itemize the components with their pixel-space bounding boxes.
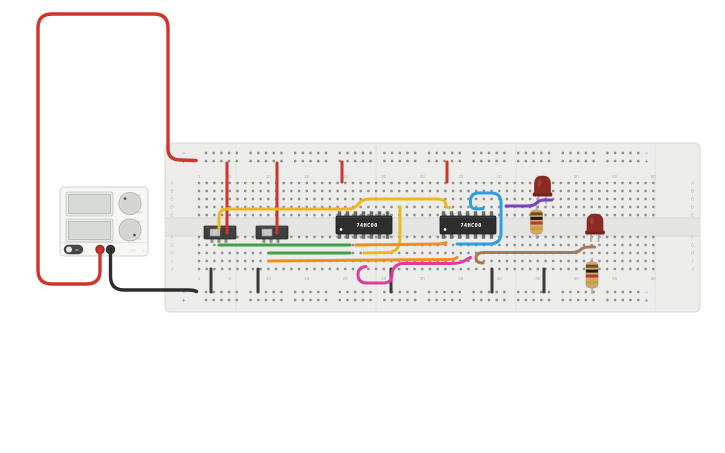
- breadboard-hole: [529, 268, 531, 270]
- breadboard-hole: [540, 299, 542, 301]
- breadboard-hole: [652, 236, 654, 238]
- breadboard-hole: [346, 299, 348, 301]
- breadboard-hole: [406, 236, 408, 238]
- breadboard-hole: [398, 182, 400, 184]
- breadboard-hole: [206, 182, 208, 184]
- breadboard-hole: [567, 198, 569, 200]
- breadboard-hole: [567, 244, 569, 246]
- breadboard-hole: [360, 236, 362, 238]
- breadboard-hole: [475, 198, 477, 200]
- breadboard-hole: [213, 299, 215, 301]
- breadboard-hole: [383, 291, 385, 293]
- breadboard-hole: [506, 260, 508, 262]
- breadboard-hole: [249, 299, 251, 301]
- breadboard-hole: [413, 182, 415, 184]
- breadboard-hole: [391, 299, 393, 301]
- breadboard-hole: [325, 291, 327, 293]
- breadboard-hole: [428, 291, 430, 293]
- breadboard-hole: [198, 252, 200, 254]
- breadboard-hole: [629, 299, 631, 301]
- breadboard-hole: [429, 252, 431, 254]
- breadboard-hole: [367, 236, 369, 238]
- breadboard-hole: [560, 244, 562, 246]
- breadboard-hole: [560, 268, 562, 270]
- breadboard-hole: [198, 244, 200, 246]
- breadboard-hole: [540, 152, 542, 154]
- breadboard-hole: [383, 206, 385, 208]
- breadboard-hole: [490, 206, 492, 208]
- breadboard-hole: [413, 214, 415, 216]
- breadboard-hole: [206, 214, 208, 216]
- breadboard-hole: [244, 236, 246, 238]
- ic-pin1-dot: [340, 228, 343, 231]
- breadboard-hole: [503, 152, 505, 154]
- breadboard-hole: [444, 252, 446, 254]
- breadboard-hole: [252, 260, 254, 262]
- breadboard-hole: [575, 182, 577, 184]
- breadboard-hole: [606, 252, 608, 254]
- breadboard-hole: [622, 160, 624, 162]
- breadboard-hole: [236, 260, 238, 262]
- breadboard-hole: [236, 182, 238, 184]
- breadboard-hole: [480, 291, 482, 293]
- breadboard-hole: [329, 268, 331, 270]
- breadboard-hole: [413, 268, 415, 270]
- breadboard-hole: [213, 206, 215, 208]
- breadboard-hole: [552, 214, 554, 216]
- breadboard-hole: [265, 299, 267, 301]
- voltage-knob-indicator: [124, 197, 127, 200]
- breadboard-hole: [503, 160, 505, 162]
- breadboard-hole: [652, 190, 654, 192]
- breadboard-hole: [283, 268, 285, 270]
- breadboard-hole: [637, 299, 639, 301]
- breadboard-hole: [583, 206, 585, 208]
- rail-minus-symbol: −: [182, 151, 186, 157]
- breadboard-hole: [614, 252, 616, 254]
- breadboard-hole: [321, 198, 323, 200]
- breadboard-hole: [413, 190, 415, 192]
- breadboard-hole: [406, 206, 408, 208]
- breadboard-hole: [406, 268, 408, 270]
- breadboard-hole: [488, 299, 490, 301]
- breadboard-hole: [575, 268, 577, 270]
- rail-minus-symbol: −: [645, 151, 649, 157]
- breadboard-hole: [552, 236, 554, 238]
- breadboard-hole: [267, 198, 269, 200]
- breadboard-hole: [614, 244, 616, 246]
- breadboard-hole: [437, 206, 439, 208]
- breadboard-hole: [213, 152, 215, 154]
- breadboard-hole: [583, 252, 585, 254]
- breadboard-hole: [336, 190, 338, 192]
- breadboard-hole: [252, 268, 254, 270]
- breadboard-hole: [206, 268, 208, 270]
- breadboard-hole: [244, 214, 246, 216]
- column-label: 30: [420, 174, 426, 179]
- breadboard-hole: [544, 244, 546, 246]
- breadboard-hole: [421, 214, 423, 216]
- breadboard-hole: [267, 182, 269, 184]
- breadboard-hole: [548, 160, 550, 162]
- breadboard-hole: [443, 291, 445, 293]
- breadboard-hole: [354, 152, 356, 154]
- psu-display-screen-1: [69, 195, 111, 214]
- breadboard-hole: [406, 182, 408, 184]
- breadboard-hole: [598, 182, 600, 184]
- breadboard-hole: [583, 198, 585, 200]
- breadboard-hole: [452, 244, 454, 246]
- breadboard-hole: [560, 260, 562, 262]
- switch-slider[interactable]: [262, 229, 272, 236]
- breadboard-hole: [472, 152, 474, 154]
- breadboard-hole: [369, 160, 371, 162]
- led-body[interactable]: [587, 214, 603, 232]
- breadboard-hole: [472, 160, 474, 162]
- breadboard-hole: [306, 182, 308, 184]
- column-label: 45: [535, 276, 541, 281]
- breadboard-hole: [309, 291, 311, 293]
- breadboard-hole: [298, 268, 300, 270]
- column-label: 60: [651, 276, 657, 281]
- breadboard-hole: [313, 190, 315, 192]
- breadboard-hole: [306, 198, 308, 200]
- breadboard-hole: [517, 299, 519, 301]
- breadboard-hole: [352, 190, 354, 192]
- breadboard-hole: [362, 152, 364, 154]
- breadboard-hole: [644, 198, 646, 200]
- breadboard-hole: [206, 198, 208, 200]
- breadboard-hole: [436, 291, 438, 293]
- breadboard-hole: [273, 152, 275, 154]
- breadboard-hole: [339, 291, 341, 293]
- breadboard-hole: [506, 190, 508, 192]
- breadboard-hole: [280, 291, 282, 293]
- breadboard-hole: [606, 236, 608, 238]
- breadboard-hole: [244, 182, 246, 184]
- breadboard-hole: [283, 214, 285, 216]
- breadboard-hole: [229, 252, 231, 254]
- breadboard-hole: [517, 160, 519, 162]
- breadboard-hole: [375, 182, 377, 184]
- breadboard-hole: [529, 182, 531, 184]
- breadboard-hole: [525, 152, 527, 154]
- breadboard-hole: [567, 206, 569, 208]
- breadboard-hole: [567, 190, 569, 192]
- breadboard-hole: [562, 160, 564, 162]
- breadboard-hole: [452, 182, 454, 184]
- breadboard-hole: [421, 252, 423, 254]
- row-label: B: [170, 189, 173, 194]
- breadboard-hole: [629, 190, 631, 192]
- breadboard-hole: [459, 291, 461, 293]
- breadboard-hole: [525, 160, 527, 162]
- breadboard-hole: [598, 260, 600, 262]
- breadboard-hole: [360, 182, 362, 184]
- breadboard-hole: [567, 268, 569, 270]
- breadboard-hole: [521, 244, 523, 246]
- breadboard-hole: [375, 190, 377, 192]
- breadboard-hole: [344, 198, 346, 200]
- breadboard-hole: [383, 160, 385, 162]
- breadboard-hole: [336, 198, 338, 200]
- breadboard-hole: [267, 214, 269, 216]
- breadboard-hole: [265, 152, 267, 154]
- breadboard-hole: [383, 268, 385, 270]
- rail-plus-symbol: +: [645, 160, 649, 166]
- breadboard-hole: [298, 198, 300, 200]
- breadboard-hole: [467, 206, 469, 208]
- breadboard-hole: [198, 198, 200, 200]
- breadboard-hole: [652, 198, 654, 200]
- breadboard-hole: [406, 152, 408, 154]
- breadboard-hole: [391, 152, 393, 154]
- breadboard-hole: [390, 182, 392, 184]
- breadboard-hole: [621, 214, 623, 216]
- breadboard-hole: [521, 214, 523, 216]
- breadboard-hole: [362, 299, 364, 301]
- breadboard-hole: [575, 198, 577, 200]
- breadboard-hole: [213, 198, 215, 200]
- breadboard-hole: [544, 214, 546, 216]
- breadboard-hole: [577, 299, 579, 301]
- breadboard-hole: [213, 244, 215, 246]
- breadboard-hole: [249, 291, 251, 293]
- breadboard-hole: [398, 190, 400, 192]
- column-label: 1: [198, 174, 201, 179]
- resistor-band: [531, 221, 543, 224]
- breadboard-hole: [467, 268, 469, 270]
- breadboard-hole: [498, 190, 500, 192]
- breadboard-hole: [346, 160, 348, 162]
- breadboard-hole: [460, 190, 462, 192]
- breadboard-hole: [294, 291, 296, 293]
- breadboard-hole: [591, 198, 593, 200]
- breadboard-hole: [313, 214, 315, 216]
- breadboard-hole: [637, 190, 639, 192]
- breadboard-hole: [302, 291, 304, 293]
- breadboard-hole: [428, 299, 430, 301]
- breadboard-hole: [443, 152, 445, 154]
- breadboard-hole: [644, 236, 646, 238]
- breadboard-hole: [460, 268, 462, 270]
- breadboard-hole: [437, 182, 439, 184]
- breadboard-hole: [637, 182, 639, 184]
- breadboard-hole: [329, 190, 331, 192]
- breadboard-hole: [503, 291, 505, 293]
- breadboard-hole: [436, 160, 438, 162]
- breadboard-hole: [406, 160, 408, 162]
- column-label: 5: [229, 276, 232, 281]
- breadboard-hole: [614, 182, 616, 184]
- breadboard-hole: [309, 152, 311, 154]
- breadboard-hole: [280, 152, 282, 154]
- breadboard-hole: [575, 206, 577, 208]
- breadboard-hole: [369, 152, 371, 154]
- breadboard-hole: [236, 291, 238, 293]
- breadboard-hole: [205, 160, 207, 162]
- breadboard-hole: [367, 182, 369, 184]
- breadboard-hole: [606, 260, 608, 262]
- breadboard-hole: [575, 190, 577, 192]
- led-body[interactable]: [535, 176, 551, 194]
- row-label: E: [170, 213, 173, 218]
- breadboard-hole: [598, 190, 600, 192]
- breadboard-hole: [644, 252, 646, 254]
- breadboard-hole: [606, 291, 608, 293]
- breadboard-hole: [452, 198, 454, 200]
- breadboard-hole: [346, 291, 348, 293]
- breadboard-hole: [236, 152, 238, 154]
- breadboard-hole: [221, 182, 223, 184]
- breadboard-hole: [399, 160, 401, 162]
- breadboard-hole: [490, 198, 492, 200]
- breadboard-hole: [399, 291, 401, 293]
- breadboard-hole: [391, 160, 393, 162]
- power-toggle-label: on: [75, 248, 79, 252]
- breadboard-hole: [652, 214, 654, 216]
- breadboard-hole: [283, 198, 285, 200]
- row-label: G: [691, 243, 695, 248]
- breadboard-hole: [621, 190, 623, 192]
- breadboard-hole: [606, 206, 608, 208]
- breadboard-hole: [383, 299, 385, 301]
- breadboard-hole: [467, 190, 469, 192]
- breadboard-hole: [552, 206, 554, 208]
- breadboard-hole: [652, 252, 654, 254]
- power-supply-group: 0V30VDC5Aon000⌁: [60, 187, 148, 256]
- breadboard-hole: [560, 214, 562, 216]
- breadboard-hole: [302, 152, 304, 154]
- breadboard-hole: [298, 214, 300, 216]
- column-label: 25: [381, 174, 387, 179]
- breadboard-hole: [228, 152, 230, 154]
- breadboard-hole: [577, 152, 579, 154]
- breadboard-hole: [614, 260, 616, 262]
- breadboard-hole: [421, 190, 423, 192]
- breadboard-hole: [306, 236, 308, 238]
- breadboard-hole: [298, 182, 300, 184]
- breadboard-hole: [244, 268, 246, 270]
- row-label: E: [691, 213, 694, 218]
- breadboard-hole: [517, 152, 519, 154]
- breadboard-hole: [514, 268, 516, 270]
- ic-label: 74HC00: [356, 223, 377, 229]
- breadboard-hole: [244, 252, 246, 254]
- breadboard-hole: [629, 260, 631, 262]
- breadboard-hole: [390, 206, 392, 208]
- breadboard-hole: [452, 268, 454, 270]
- breadboard-hole: [346, 152, 348, 154]
- breadboard-hole: [591, 190, 593, 192]
- breadboard-hole: [467, 182, 469, 184]
- breadboard-hole: [290, 182, 292, 184]
- breadboard-hole: [637, 291, 639, 293]
- breadboard-hole: [637, 152, 639, 154]
- breadboard-hole: [525, 299, 527, 301]
- breadboard-hole: [514, 236, 516, 238]
- breadboard-hole: [228, 291, 230, 293]
- breadboard-hole: [206, 206, 208, 208]
- breadboard-hole: [621, 182, 623, 184]
- breadboard-hole: [354, 291, 356, 293]
- breadboard-hole: [383, 236, 385, 238]
- column-label: 35: [458, 276, 464, 281]
- breadboard-hole: [283, 182, 285, 184]
- breadboard-hole: [488, 291, 490, 293]
- breadboard-hole: [606, 190, 608, 192]
- breadboard-hole: [569, 299, 571, 301]
- rail-plus-symbol: +: [645, 299, 649, 305]
- breadboard-hole: [652, 244, 654, 246]
- breadboard-hole: [598, 244, 600, 246]
- breadboard-hole: [548, 299, 550, 301]
- breadboard-hole: [329, 198, 331, 200]
- breadboard-hole: [621, 260, 623, 262]
- breadboard-hole: [273, 160, 275, 162]
- breadboard-hole: [205, 299, 207, 301]
- breadboard-hole: [652, 182, 654, 184]
- breadboard-hole: [298, 236, 300, 238]
- breadboard-hole: [362, 160, 364, 162]
- breadboard-hole: [521, 268, 523, 270]
- breadboard-hole: [629, 244, 631, 246]
- breadboard-hole: [514, 182, 516, 184]
- breadboard-hole: [414, 152, 416, 154]
- breadboard-hole: [290, 268, 292, 270]
- breadboard-hole: [644, 268, 646, 270]
- row-label: J: [691, 267, 693, 272]
- breadboard-hole: [560, 206, 562, 208]
- row-label: H: [691, 251, 694, 256]
- breadboard-hole: [329, 182, 331, 184]
- breadboard-hole: [406, 252, 408, 254]
- breadboard-hole: [444, 268, 446, 270]
- column-label: 40: [497, 276, 503, 281]
- breadboard-hole: [321, 268, 323, 270]
- column-label: 55: [612, 174, 618, 179]
- breadboard-hole: [399, 299, 401, 301]
- breadboard-hole: [529, 198, 531, 200]
- breadboard-hole: [532, 152, 534, 154]
- voltage-knob-label-bottom: 30V: [137, 211, 144, 215]
- breadboard-hole: [244, 260, 246, 262]
- breadboard-hole: [629, 268, 631, 270]
- breadboard-hole: [532, 160, 534, 162]
- breadboard-hole: [614, 206, 616, 208]
- breadboard-hole: [583, 182, 585, 184]
- breadboard-hole: [521, 190, 523, 192]
- breadboard-hole: [290, 214, 292, 216]
- breadboard-hole: [552, 260, 554, 262]
- breadboard-hole: [352, 182, 354, 184]
- breadboard-hole: [480, 152, 482, 154]
- column-label: 50: [574, 276, 580, 281]
- breadboard-hole: [344, 190, 346, 192]
- breadboard-hole: [265, 291, 267, 293]
- breadboard-hole: [313, 182, 315, 184]
- breadboard-hole: [652, 260, 654, 262]
- breadboard-hole: [592, 152, 594, 154]
- breadboard-hole: [606, 198, 608, 200]
- current-knob-indicator: [133, 234, 136, 237]
- breadboard-hole: [621, 268, 623, 270]
- breadboard-hole: [421, 206, 423, 208]
- breadboard-hole: [317, 160, 319, 162]
- breadboard-hole: [475, 182, 477, 184]
- breadboard-hole: [360, 206, 362, 208]
- ic-pin1-dot: [444, 228, 447, 231]
